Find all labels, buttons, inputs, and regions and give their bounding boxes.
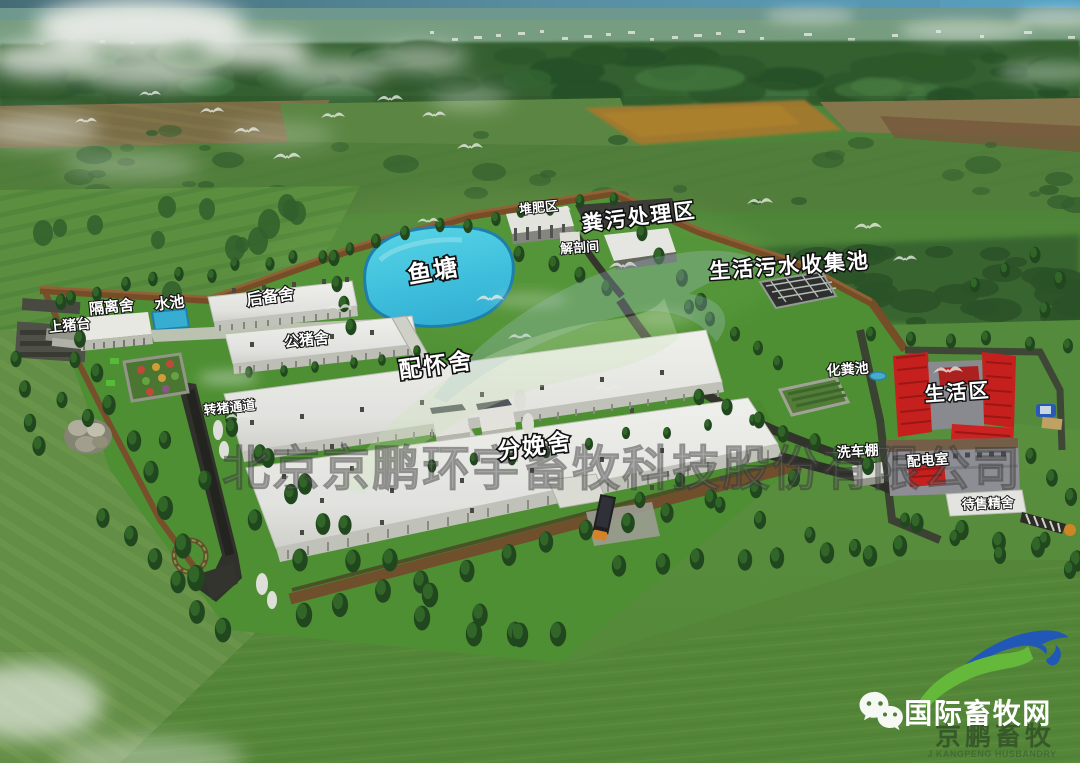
- svg-text:洗车棚: 洗车棚: [836, 442, 879, 461]
- svg-text:解剖间: 解剖间: [559, 239, 600, 257]
- svg-text:北京京鹏环宇畜牧科技股份有限公司: 北京京鹏环宇畜牧科技股份有限公司: [222, 443, 1022, 496]
- svg-text:J KANGPENG HUSBANDRY: J KANGPENG HUSBANDRY: [927, 749, 1056, 759]
- svg-text:待售精舍: 待售精舍: [961, 495, 1015, 512]
- svg-text:生活区: 生活区: [924, 379, 991, 407]
- svg-text:国际畜牧网: 国际畜牧网: [904, 697, 1052, 729]
- svg-text:水池: 水池: [154, 293, 186, 314]
- svg-text:配电室: 配电室: [906, 451, 949, 470]
- svg-text:化粪池: 化粪池: [826, 360, 869, 379]
